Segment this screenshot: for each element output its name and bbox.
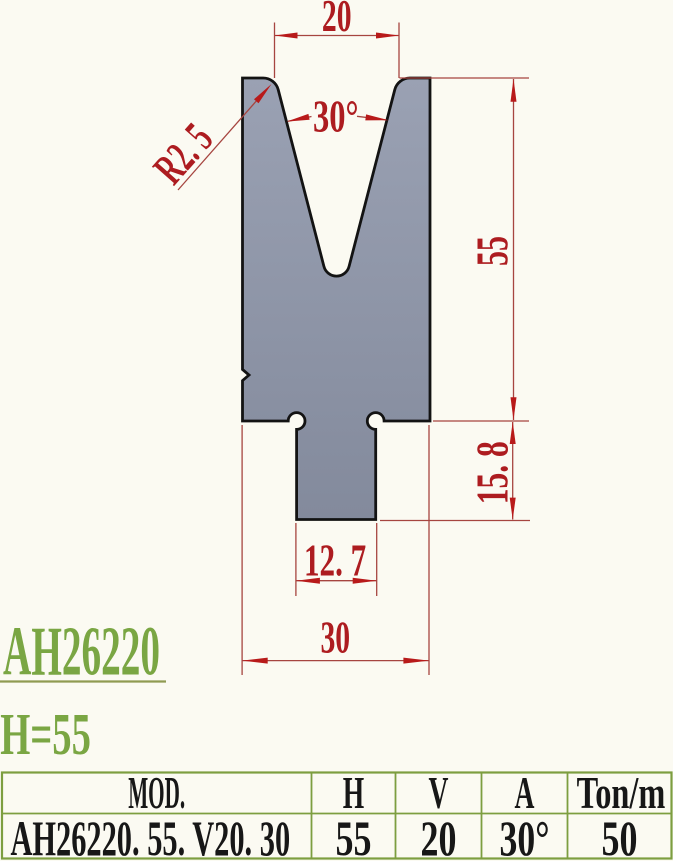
svg-text:55: 55 bbox=[336, 811, 372, 861]
svg-text:H=55: H=55 bbox=[0, 702, 91, 767]
svg-text:20: 20 bbox=[421, 811, 457, 861]
svg-text:15. 8: 15. 8 bbox=[468, 441, 518, 504]
svg-text:50: 50 bbox=[602, 811, 638, 861]
svg-text:30°: 30° bbox=[500, 811, 550, 861]
svg-text:AH26220: AH26220 bbox=[3, 613, 160, 691]
svg-text:55: 55 bbox=[469, 236, 518, 266]
svg-text:30: 30 bbox=[320, 614, 350, 664]
svg-text:12. 7: 12. 7 bbox=[304, 536, 366, 586]
svg-text:20: 20 bbox=[322, 0, 352, 42]
svg-text:AH26220. 55. V20. 30: AH26220. 55. V20. 30 bbox=[10, 810, 290, 861]
svg-text:30°: 30° bbox=[313, 91, 359, 142]
